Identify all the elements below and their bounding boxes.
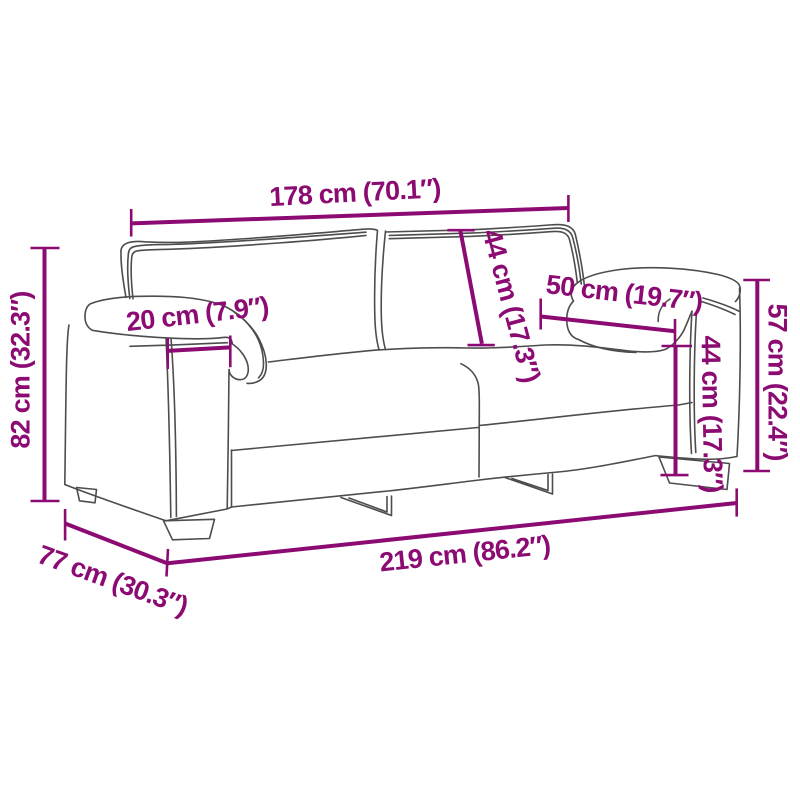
svg-text:82 cm (32.3″): 82 cm (32.3″) (6, 291, 36, 448)
svg-text:57 cm (22.4″): 57 cm (22.4″) (762, 303, 792, 460)
svg-text:44 cm (17.3″): 44 cm (17.3″) (696, 335, 729, 493)
